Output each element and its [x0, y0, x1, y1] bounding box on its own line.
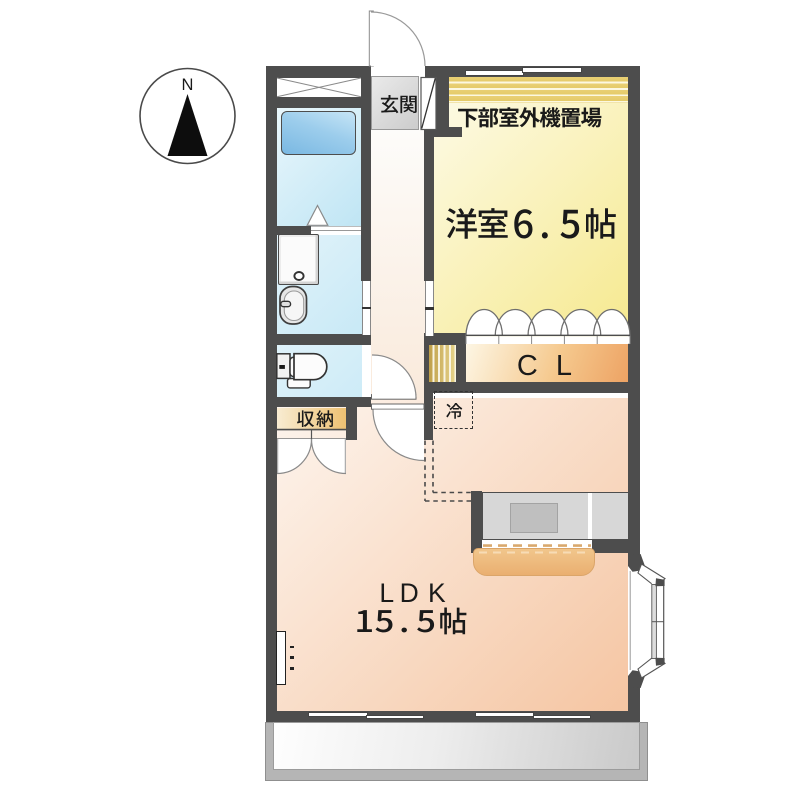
- svg-text:D: D: [400, 578, 419, 608]
- svg-text:N: N: [182, 76, 194, 94]
- svg-text:L: L: [556, 350, 572, 382]
- svg-text:K: K: [428, 578, 446, 608]
- svg-text:C: C: [517, 350, 538, 382]
- svg-text:L: L: [379, 578, 394, 608]
